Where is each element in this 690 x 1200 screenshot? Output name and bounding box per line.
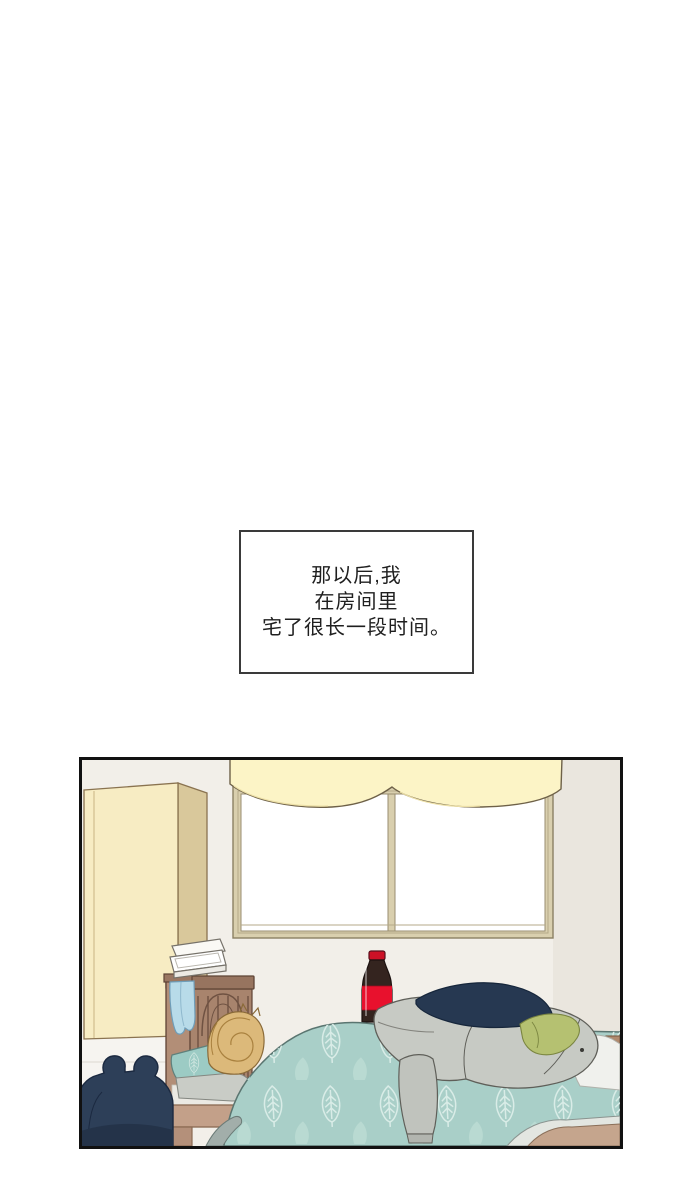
- wardrobe-front: [84, 783, 178, 1039]
- towel: [170, 981, 195, 1034]
- bottle-cap: [369, 951, 385, 960]
- open-box: [170, 939, 226, 978]
- narration-line-3: 宅了很长一段时间。: [262, 615, 451, 641]
- narration-line-1: 那以后,我: [311, 563, 402, 589]
- narration-box: 那以后,我 在房间里 宅了很长一段时间。: [239, 530, 474, 674]
- window: [233, 786, 553, 938]
- jacket-sleeve: [399, 1055, 438, 1134]
- comic-panel: [79, 757, 623, 1149]
- window-mullion: [388, 794, 395, 931]
- narration-line-2: 在房间里: [315, 589, 399, 615]
- comic-page: 那以后,我 在房间里 宅了很长一段时间。: [0, 0, 690, 1200]
- bedroom-scene: [82, 760, 620, 1146]
